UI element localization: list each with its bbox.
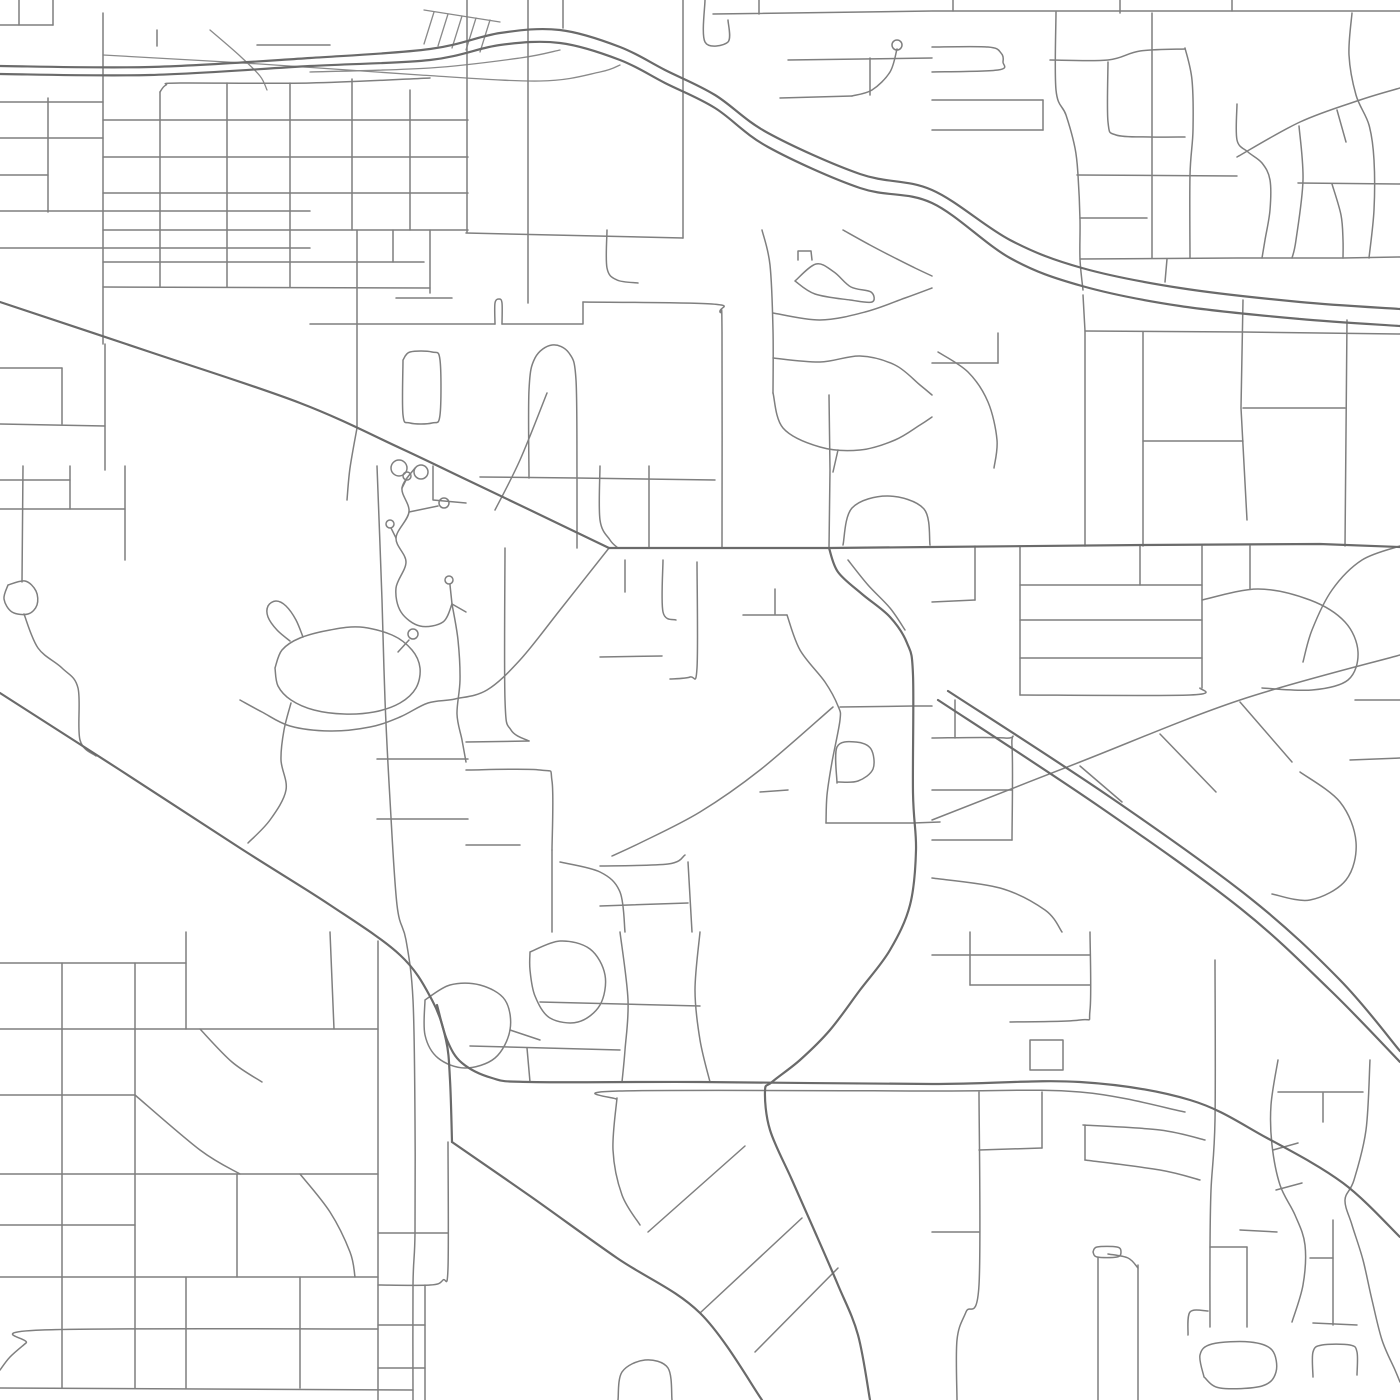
minor-road: [1298, 183, 1400, 184]
minor-road: [600, 656, 662, 657]
map-viewport: [0, 0, 1400, 1400]
minor-road: [466, 741, 529, 742]
minor-road: [103, 287, 430, 288]
minor-road: [22, 466, 23, 582]
street-map-canvas: [0, 0, 1400, 1400]
minor-road: [1077, 175, 1237, 176]
